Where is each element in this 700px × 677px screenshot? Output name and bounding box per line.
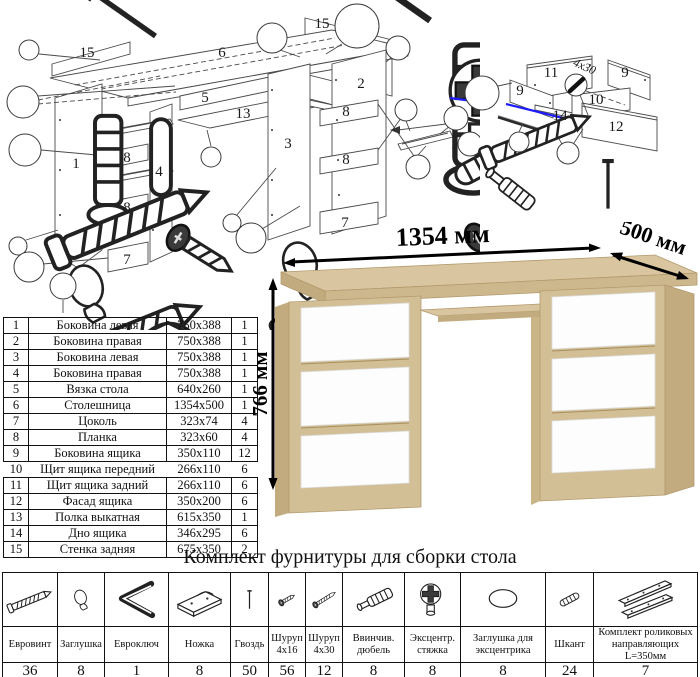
part-number-label: 13 — [236, 106, 251, 122]
part-number: 9 — [4, 446, 29, 462]
hardware-icon-cell — [594, 573, 698, 627]
part-size: 323х60 — [167, 430, 232, 446]
part-number: 3 — [4, 350, 29, 366]
part-number-label: 8 — [123, 200, 131, 216]
part-name: Столешница — [29, 398, 167, 414]
hardware-icon-cell — [343, 573, 405, 627]
nail-icon — [602, 161, 613, 209]
hardware-qty-cell: 8 — [405, 663, 461, 677]
hardware-icon-cell — [546, 573, 594, 627]
part-number-label: 12 — [609, 119, 624, 135]
hardware-name-cell: Евровинт — [3, 627, 58, 663]
hardware-qty-cell: 8 — [58, 663, 105, 677]
part-number: 2 — [4, 334, 29, 350]
hardware-qty-cell: 8 — [169, 663, 231, 677]
drawer-front — [552, 354, 655, 411]
hardware-name-cell: Евроключ — [105, 627, 169, 663]
part-number-label: 3 — [284, 136, 292, 152]
desk-right-pedestal — [540, 285, 694, 501]
hardware-name-cell: Шуруп 4х16 — [269, 627, 306, 663]
hardware-table: ЕвровинтЗаглушкаЕвроключНожкаГвоздьШуруп… — [2, 572, 698, 677]
part-name: Щит ящика задний — [29, 478, 167, 494]
part-number: 11 — [4, 478, 29, 494]
part-number-label: 8 — [342, 152, 350, 168]
hardware-icon-cell — [461, 573, 546, 627]
part-number-label: 15 — [80, 45, 95, 61]
part-name: Полка выкатная — [29, 510, 167, 526]
foot-icon — [169, 575, 230, 624]
dim-width: 1354 мм — [395, 222, 490, 252]
hardware-icon-cell — [405, 573, 461, 627]
hardware-qty-cell: 8 — [461, 663, 546, 677]
part-number-label: 10 — [589, 92, 604, 108]
part-number-label: 8 — [342, 104, 350, 120]
assembly-diagram-drawer: 11991014124х30 — [440, 25, 700, 230]
hardware-icon-cell — [269, 573, 306, 627]
parts-table-body: 1Боковина левая750х38812Боковина правая7… — [4, 318, 258, 558]
part-name: Боковина ящика — [29, 446, 167, 462]
hardware-qty-cell: 1 — [105, 663, 169, 677]
part-number: 10 — [4, 462, 29, 478]
dim-height: 766 мм — [253, 351, 272, 416]
part-name: Планка — [29, 430, 167, 446]
hardware-icon-cell — [58, 573, 105, 627]
dim-depth: 500 мм — [617, 222, 690, 260]
part-number: 7 — [4, 414, 29, 430]
parts-table-row: 9Боковина ящика350х11012 — [4, 446, 258, 462]
part-size: 266х110 — [167, 462, 232, 478]
parts-table-row: 7Цоколь323х744 — [4, 414, 258, 430]
assembly-sheet: 156152513184873887 — [0, 0, 700, 677]
hardware-name-cell: Заглушка для эксцентрика — [461, 627, 546, 663]
screw-short-icon — [269, 575, 305, 624]
part-name: Боковина правая — [29, 334, 167, 350]
hardware-qty-cell: 24 — [546, 663, 594, 677]
part-number-label: 11 — [544, 65, 558, 81]
hardware-name-cell: Гвоздь — [231, 627, 269, 663]
part-size: 323х74 — [167, 414, 232, 430]
drawer-front — [301, 303, 409, 362]
part-number: 4 — [4, 366, 29, 382]
part-number-label: 6 — [218, 45, 226, 61]
part-number-label: 5 — [201, 90, 209, 106]
part-size: 266х110 — [167, 478, 232, 494]
part-number: 6 — [4, 398, 29, 414]
desk-left-pedestal — [275, 296, 421, 517]
part-name: Дно ящика — [29, 526, 167, 542]
part-size: 615х350 — [167, 510, 232, 526]
divider-panel-3 — [268, 64, 310, 240]
hex-key-icon — [105, 575, 168, 624]
part-size: 750х388 — [167, 318, 232, 334]
part-number: 14 — [4, 526, 29, 542]
parts-table-row: 2Боковина правая750х3881 — [4, 334, 258, 350]
parts-table-row: 8Планка323х604 — [4, 430, 258, 446]
hardware-qty-cell: 50 — [231, 663, 269, 677]
hardware-name-cell: Шкант — [546, 627, 594, 663]
hardware-qty-row: 36818505612888247 — [3, 663, 698, 677]
hardware-name-cell: Эксцентр. стяжка — [405, 627, 461, 663]
hardware-name-row: ЕвровинтЗаглушкаЕвроключНожкаГвоздьШуруп… — [3, 627, 698, 663]
hardware-name-cell: Ножка — [169, 627, 231, 663]
wood-dowel-icon — [546, 575, 593, 624]
hardware-qty-cell: 7 — [594, 663, 698, 677]
parts-table: 1Боковина левая750х38812Боковина правая7… — [3, 317, 258, 558]
hardware-icon-cell — [105, 573, 169, 627]
part-size: 640х260 — [167, 382, 232, 398]
part-number-label: 2 — [357, 76, 365, 92]
part-name: Боковина левая — [29, 350, 167, 366]
part-number-label: 15 — [315, 16, 330, 32]
part-name: Вязка стола — [29, 382, 167, 398]
part-number-label: 9 — [516, 83, 524, 99]
hardware-name-cell: Ввинчив. дюбель — [343, 627, 405, 663]
part-size: 346х295 — [167, 526, 232, 542]
part-name: Цоколь — [29, 414, 167, 430]
part-number-label: 9 — [621, 65, 629, 81]
parts-table-row: 6Столешница1354х5001 — [4, 398, 258, 414]
part-number: 13 — [4, 510, 29, 526]
part-name: Щит ящика передний — [29, 462, 167, 478]
hardware-qty-cell: 36 — [3, 663, 58, 677]
hardware-qty-cell: 12 — [306, 663, 343, 677]
hardware-icon-cell — [3, 573, 58, 627]
part-name: Фасад ящика — [29, 494, 167, 510]
parts-table-row: 4Боковина правая750х3881 — [4, 366, 258, 382]
parts-table-row: 3Боковина левая750х3881 — [4, 350, 258, 366]
drawer-front — [301, 367, 409, 426]
hardware-name-cell: Шуруп 4х30 — [306, 627, 343, 663]
part-size: 750х388 — [167, 350, 232, 366]
drawer-slides-icon — [594, 575, 697, 624]
part-number-label: 8 — [123, 150, 131, 166]
parts-table-row: 10Щит ящика передний266х1106 — [4, 462, 258, 478]
part-size: 350х200 — [167, 494, 232, 510]
cap-icon — [58, 575, 104, 624]
part-number: 12 — [4, 494, 29, 510]
hardware-qty-cell: 56 — [269, 663, 306, 677]
part-number-label: 7 — [123, 252, 131, 268]
cam-cover-icon — [461, 575, 545, 624]
dowel-bolt-icon — [343, 575, 404, 624]
desk-render: 1354 мм 500 мм 766 мм — [253, 222, 700, 545]
part-number: 8 — [4, 430, 29, 446]
part-number: 1 — [4, 318, 29, 334]
hardware-icon-cell — [306, 573, 343, 627]
drawer-front — [552, 292, 655, 349]
nail-icon — [231, 575, 268, 624]
hardware-kit-title: Комплект фурнитуры для сборки стола — [0, 546, 700, 569]
part-number-label: 14 — [553, 108, 569, 124]
part-number: 5 — [4, 382, 29, 398]
part-name: Боковина правая — [29, 366, 167, 382]
hardware-name-cell: Заглушка — [58, 627, 105, 663]
part-size: 750х388 — [167, 334, 232, 350]
part-number-label: 1 — [72, 156, 80, 172]
parts-table-row: 5Вязка стола640х2601 — [4, 382, 258, 398]
parts-table-row: 1Боковина левая750х3881 — [4, 318, 258, 334]
parts-table-row: 14Дно ящика346х2956 — [4, 526, 258, 542]
part-size: 350х110 — [167, 446, 232, 462]
hardware-icon-cell — [169, 573, 231, 627]
screw-long-icon — [306, 575, 342, 624]
parts-table-row: 13Полка выкатная615х3501 — [4, 510, 258, 526]
drawer-front — [552, 416, 655, 473]
part-number-label: 4 — [155, 164, 163, 180]
hardware-icon-row — [3, 573, 698, 627]
parts-table-row: 11Щит ящика задний266х1106 — [4, 478, 258, 494]
part-size: 750х388 — [167, 366, 232, 382]
cam-lock-icon — [405, 575, 460, 624]
parts-table-row: 12Фасад ящика350х2006 — [4, 494, 258, 510]
part-name: Боковина левая — [29, 318, 167, 334]
desk-keyboard-tray — [420, 304, 558, 505]
confirmat-screw-icon — [3, 575, 57, 624]
hardware-icon-cell — [231, 573, 269, 627]
hardware-qty-cell: 8 — [343, 663, 405, 677]
drawer-front — [301, 431, 409, 488]
hardware-name-cell: Комплект роликовых направляющих L=350мм — [594, 627, 698, 663]
part-size: 1354х500 — [167, 398, 232, 414]
